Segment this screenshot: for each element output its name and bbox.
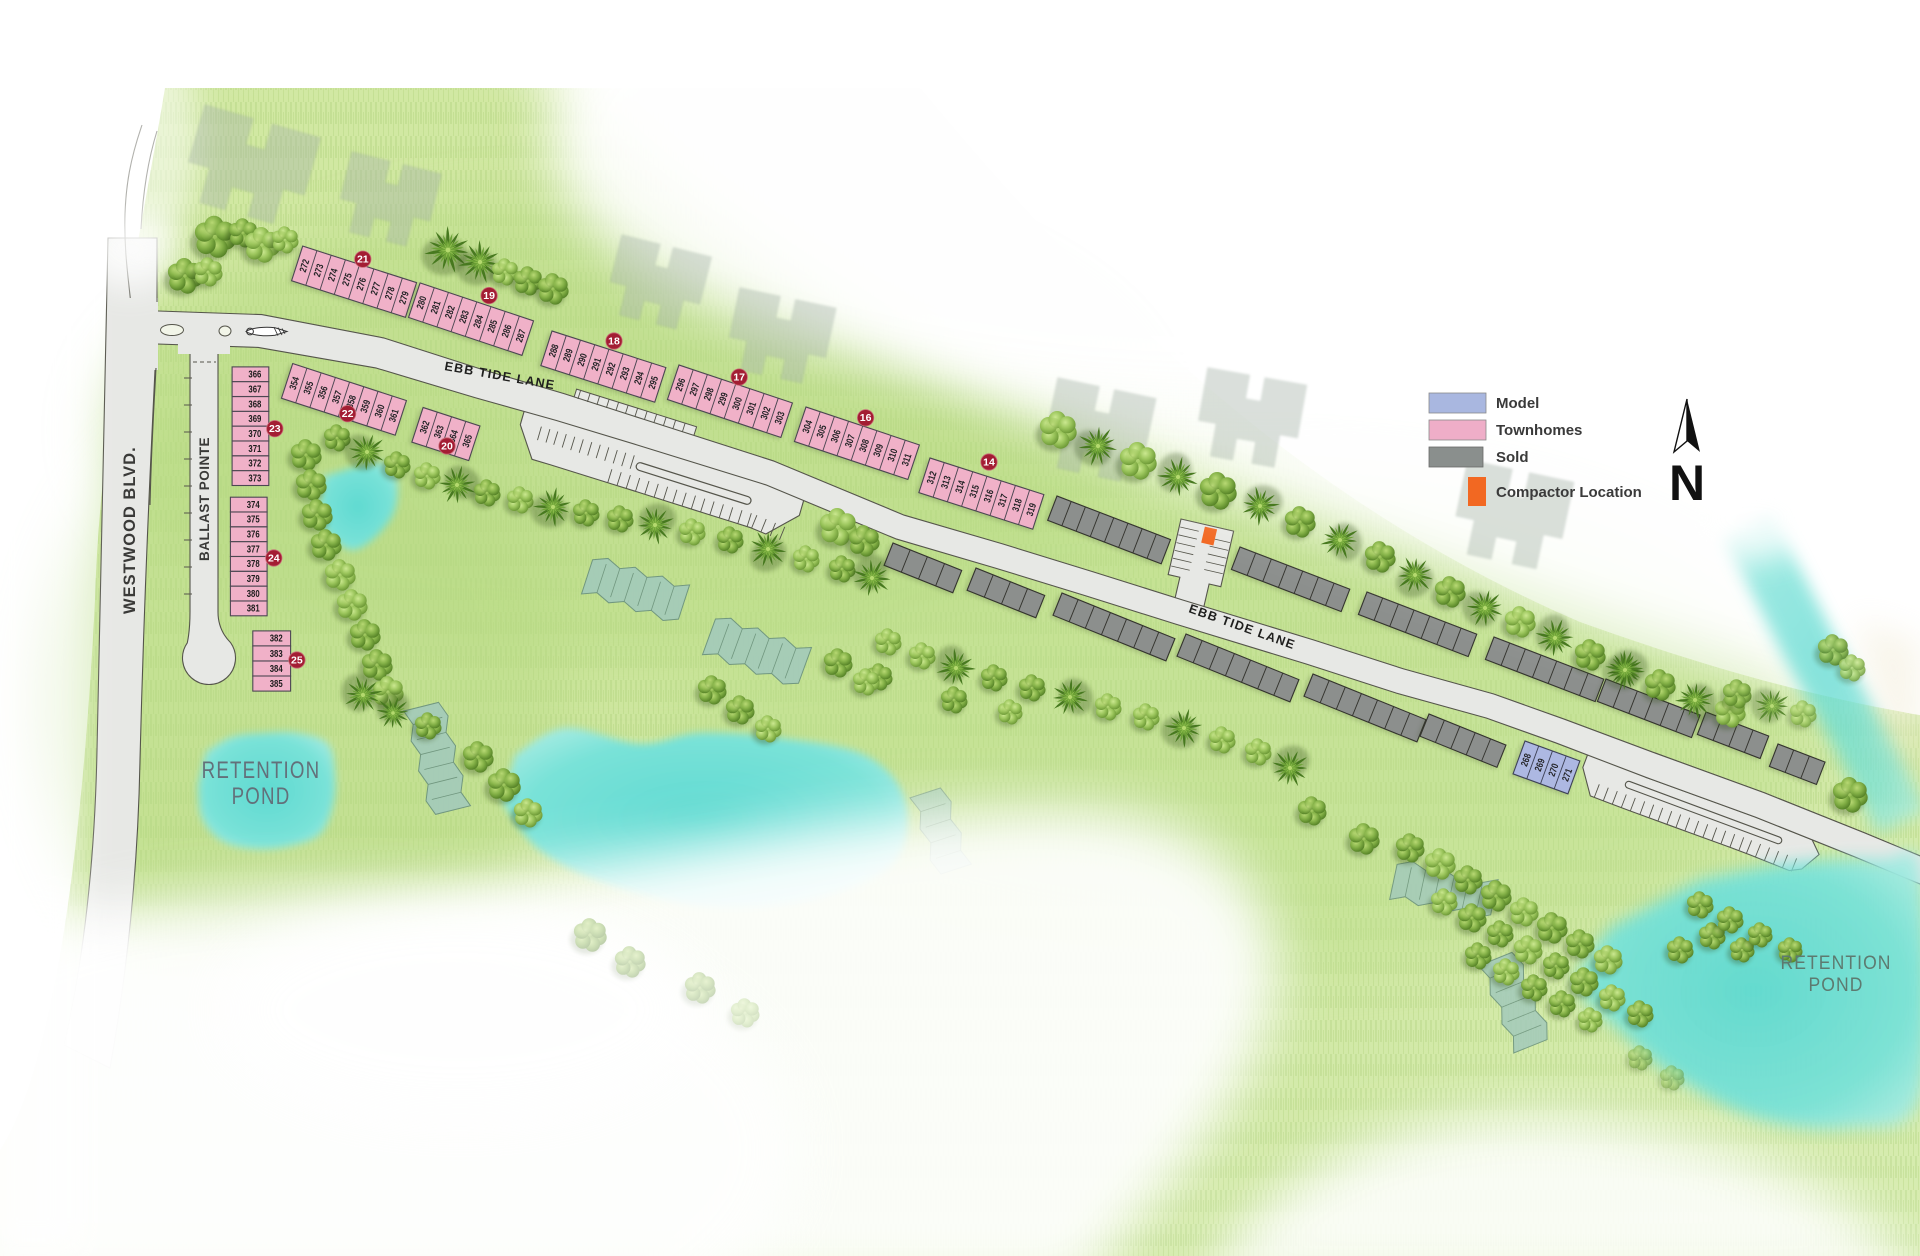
svg-text:379: 379 <box>247 573 260 584</box>
svg-text:POND: POND <box>232 783 291 810</box>
svg-text:384: 384 <box>270 663 283 674</box>
svg-text:382: 382 <box>270 633 283 644</box>
svg-text:Compactor Location: Compactor Location <box>1496 484 1642 501</box>
svg-text:18: 18 <box>608 335 620 347</box>
svg-text:POND: POND <box>1808 973 1863 995</box>
svg-text:376: 376 <box>247 529 260 540</box>
svg-text:377: 377 <box>247 544 260 555</box>
svg-text:25: 25 <box>291 654 303 666</box>
svg-text:22: 22 <box>342 408 354 420</box>
svg-text:378: 378 <box>247 558 260 569</box>
svg-text:383: 383 <box>270 648 283 659</box>
svg-text:RETENTION: RETENTION <box>202 757 321 784</box>
svg-text:367: 367 <box>248 384 261 395</box>
svg-text:17: 17 <box>733 372 745 384</box>
svg-text:Model: Model <box>1496 395 1539 412</box>
svg-text:14: 14 <box>983 456 995 468</box>
svg-text:19: 19 <box>483 290 495 302</box>
svg-text:16: 16 <box>860 412 872 424</box>
svg-text:Sold: Sold <box>1496 449 1529 466</box>
svg-text:RETENTION: RETENTION <box>1780 951 1891 973</box>
svg-text:Townhomes: Townhomes <box>1496 422 1582 439</box>
svg-text:370: 370 <box>248 428 261 439</box>
svg-text:369: 369 <box>248 413 261 424</box>
svg-text:WESTWOOD BLVD.: WESTWOOD BLVD. <box>121 446 139 614</box>
svg-text:385: 385 <box>270 678 283 689</box>
svg-text:380: 380 <box>247 588 260 599</box>
svg-text:374: 374 <box>247 499 260 510</box>
svg-text:373: 373 <box>248 473 261 484</box>
svg-text:21: 21 <box>357 254 369 266</box>
svg-text:24: 24 <box>268 552 280 564</box>
svg-text:23: 23 <box>269 423 281 435</box>
svg-text:N: N <box>1669 455 1705 511</box>
svg-text:381: 381 <box>247 603 260 614</box>
svg-text:372: 372 <box>248 458 261 469</box>
svg-text:368: 368 <box>248 398 261 409</box>
svg-text:20: 20 <box>441 440 453 452</box>
svg-text:375: 375 <box>247 514 260 525</box>
svg-text:BALLAST POINTE: BALLAST POINTE <box>197 437 212 561</box>
svg-text:366: 366 <box>248 369 261 380</box>
svg-text:371: 371 <box>248 443 261 454</box>
